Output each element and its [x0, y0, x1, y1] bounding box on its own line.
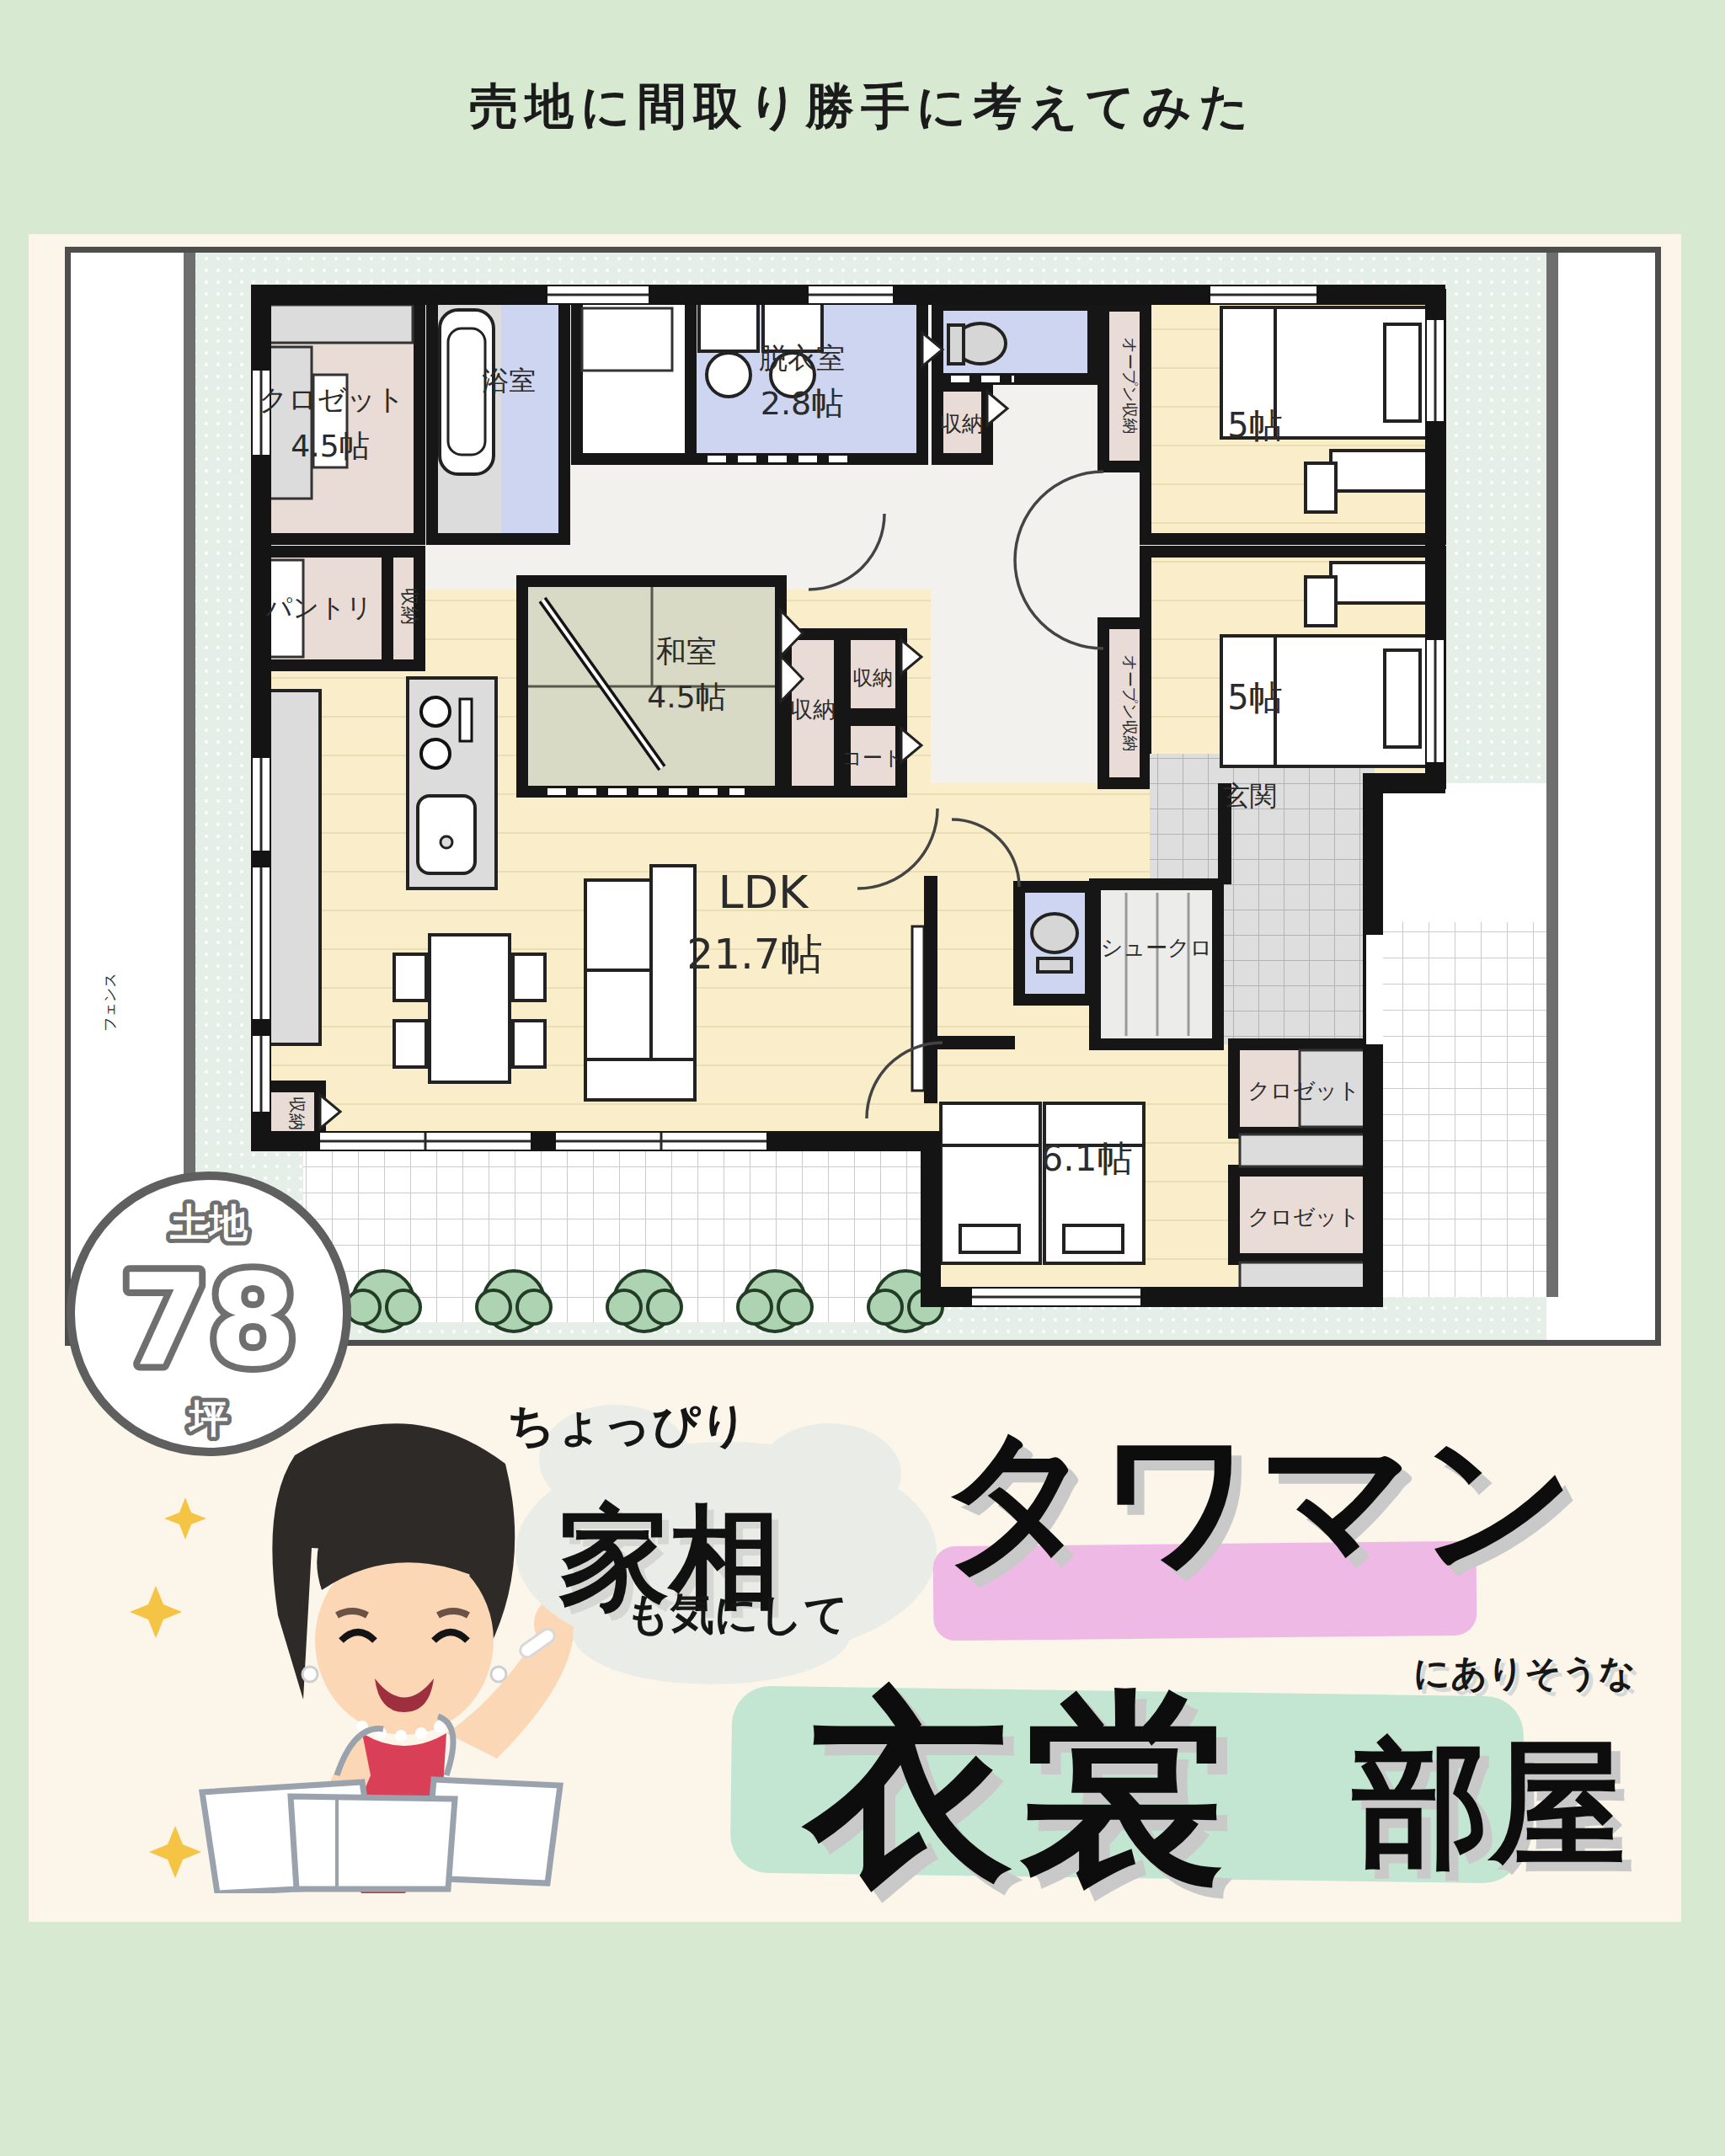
site-boundary-right	[1546, 253, 1558, 1297]
label-wic-size: 4.5帖	[291, 429, 369, 463]
fence-label: フェンス	[101, 973, 118, 1032]
toilet-icon	[948, 323, 1006, 364]
label-closet-2: クロゼット	[1247, 1204, 1359, 1230]
label-hall-storage: 収納	[940, 411, 984, 436]
caption-prefix: ちょっぴり	[467, 1394, 788, 1458]
caption-connector: にありそうな	[1394, 1649, 1655, 1698]
label-pantry: パントリ	[265, 592, 373, 622]
label-pantry-storage: 収納	[399, 588, 420, 625]
label-open-storage-1: オープン収納	[1121, 337, 1140, 434]
label-wic: クロゼット	[259, 382, 405, 416]
label-dressing: 脱衣室	[759, 341, 845, 375]
label-bedroom-2: 5帖	[1227, 678, 1282, 717]
caption-tawaman: タワマン	[914, 1398, 1605, 1604]
sofa-icon	[585, 866, 695, 1100]
kitchen-island-icon	[408, 678, 496, 889]
tv-board-icon	[912, 926, 924, 1091]
label-ldk: LDK	[718, 866, 809, 919]
label-coat: コート	[841, 746, 903, 770]
vanity-icon	[582, 308, 672, 371]
kitchen-counter-icon	[264, 691, 320, 1044]
label-washitsu-storage: 収納	[790, 696, 836, 723]
label-shoe-closet: シュークロ	[1101, 935, 1212, 960]
label-genkan: 玄関	[1223, 780, 1277, 812]
label-open-storage-2: オープン収納	[1121, 654, 1140, 751]
badge-label-top: 土地	[170, 1200, 248, 1246]
label-ldk-storage: 収納	[287, 1097, 307, 1130]
closet-cabinet-icon	[1240, 1134, 1367, 1166]
label-ldk-size: 21.7帖	[686, 930, 822, 979]
page: 売地に間取り勝手に考えてみた	[0, 0, 1725, 2156]
toilet-icon	[1032, 914, 1077, 972]
label-bedroom-3: 6.1帖	[1041, 1138, 1133, 1179]
label-bath: 浴室	[482, 365, 536, 397]
caption-heya: 部屋	[1304, 1714, 1674, 1898]
approach-tiles	[1375, 922, 1546, 1297]
shower-floor	[501, 301, 558, 533]
label-bedroom-1: 5帖	[1227, 406, 1282, 445]
caption-ishou: 衣裳	[724, 1652, 1314, 1932]
label-closet-1: クロゼット	[1247, 1078, 1359, 1103]
label-washitsu: 和室	[656, 634, 717, 669]
page-title: 売地に間取り勝手に考えてみた	[0, 74, 1725, 140]
label-small-storage: 収納	[852, 666, 893, 690]
label-washitsu-size: 4.5帖	[647, 680, 725, 714]
caption-suffix: も気にして	[560, 1585, 914, 1644]
label-dressing-size: 2.8帖	[761, 385, 843, 422]
